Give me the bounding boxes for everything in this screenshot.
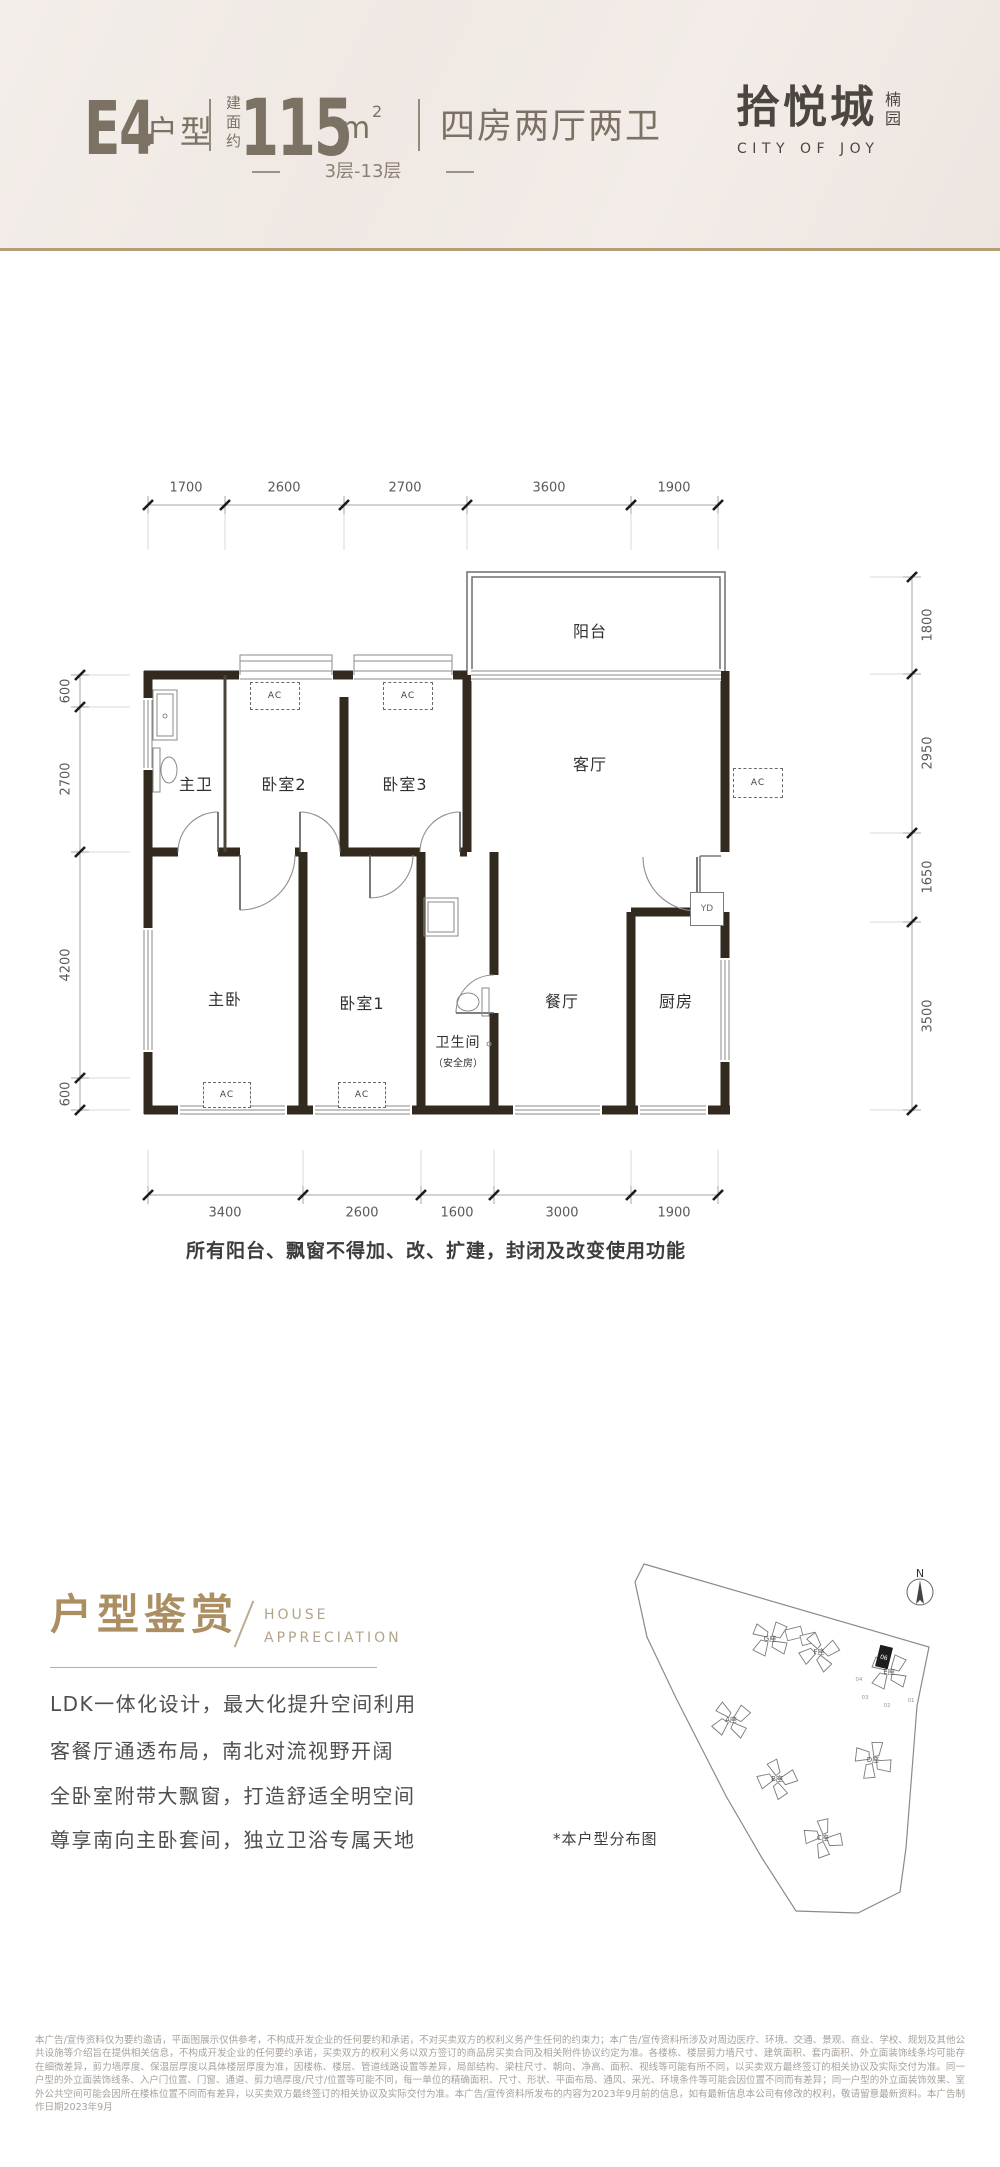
appreciation-subtitle-1: HOUSE	[264, 1608, 329, 1622]
legal-disclaimer: 本广告/宣传资料仅为要约邀请，平面图展示仅供参考，不构成开发企业的任何要约和承诺…	[35, 2034, 965, 2114]
dim-top-4: 3600	[532, 481, 565, 496]
ac-unit-box: AC	[338, 1082, 386, 1108]
appreciation-rule	[50, 1667, 377, 1668]
room-bedroom1: 卧室1	[339, 990, 384, 1014]
highlighted-unit: 06	[875, 1645, 893, 1669]
room-bathroom: 卫生间	[436, 1032, 481, 1052]
unit-label: 04	[856, 1677, 863, 1683]
ac-label: AC	[355, 1090, 369, 1100]
dim-bottom-4: 3000	[545, 1206, 578, 1221]
dim-left-4: 600	[59, 1082, 74, 1107]
yd-label: YD	[701, 904, 713, 914]
unit-suffix: 户型	[146, 116, 214, 148]
appreciation-title: 户型鉴赏	[50, 1594, 238, 1636]
dash-line	[252, 171, 280, 173]
area-value: 115	[240, 90, 351, 168]
room-balcony: 阳台	[573, 618, 607, 642]
dim-left-3: 4200	[59, 948, 74, 981]
area-superscript: 2	[372, 104, 382, 120]
unit-label: 03	[862, 1695, 869, 1701]
site-boundary	[635, 1564, 929, 1913]
logo-sub-char: 园	[884, 111, 902, 127]
ac-label: AC	[220, 1090, 234, 1100]
dim-top-2: 2600	[267, 481, 300, 496]
ac-label: AC	[268, 691, 282, 701]
north-arrow-icon: N	[907, 1567, 933, 1605]
divider	[418, 99, 420, 151]
area-prefix-char: 面	[226, 113, 241, 132]
building-clusters	[710, 1622, 906, 1862]
dim-right-2: 2950	[921, 736, 936, 769]
building-labels: G座 F座 E座 A座 B座 D座 C座	[725, 1634, 895, 1842]
laundry-box: YD	[690, 892, 724, 926]
feature-line-2: 客餐厅通透布局，南北对流视野开阔	[50, 1741, 394, 1761]
room-master-bedroom: 主卧	[208, 986, 242, 1010]
room-master-bath: 主卫	[179, 771, 213, 795]
dim-bottom-3: 1600	[440, 1206, 473, 1221]
bathroom-fixtures	[153, 690, 491, 1046]
room-bathroom-sub: （安全房）	[433, 1055, 483, 1070]
dim-left-1: 600	[59, 679, 74, 704]
dim-top-1: 1700	[169, 481, 202, 496]
building-label-d: D座	[867, 1755, 879, 1764]
unit-code: E4	[84, 92, 155, 166]
ac-label: AC	[751, 778, 765, 788]
door-arcs	[178, 812, 697, 1013]
dim-bottom-1: 3400	[208, 1206, 241, 1221]
logo-english: CITY OF JOY	[737, 142, 879, 156]
floors-range: 3层-13层	[288, 163, 438, 181]
floor-plan	[0, 460, 1000, 1260]
dim-right-4: 3500	[921, 999, 936, 1032]
gold-divider-line	[0, 248, 1000, 251]
north-label: N	[916, 1567, 924, 1580]
site-plan-caption: *本户型分布图	[553, 1828, 658, 1849]
room-kitchen: 厨房	[659, 988, 693, 1012]
area-unit: m	[341, 114, 370, 144]
room-bedroom2: 卧室2	[261, 771, 306, 795]
ac-unit-box: AC	[733, 768, 783, 798]
area-prefix: 建 面 约	[217, 94, 235, 132]
dim-left-2: 2700	[59, 762, 74, 795]
ac-unit-box: AC	[250, 682, 300, 710]
feature-line-4: 尊享南向主卧套间，独立卫浴专属天地	[50, 1830, 416, 1850]
building-label-a: A座	[725, 1715, 737, 1724]
dim-top-3: 2700	[388, 481, 421, 496]
unit-label: 02	[884, 1703, 891, 1709]
plan-restriction-note: 所有阳台、飘窗不得加、改、扩建，封闭及改变使用功能	[136, 1236, 736, 1263]
building-label-c: C座	[817, 1833, 829, 1842]
unit-label: 01	[908, 1698, 915, 1704]
area-prefix-char: 建	[226, 94, 241, 113]
room-dining: 餐厅	[545, 988, 579, 1012]
logo-sub-char: 楠	[884, 92, 902, 108]
building-label-b: B座	[771, 1774, 783, 1783]
room-bedroom3: 卧室3	[382, 771, 427, 795]
logo-name: 拾悦城	[736, 86, 877, 130]
dim-bottom-2: 2600	[345, 1206, 378, 1221]
dash-line	[446, 171, 474, 173]
ac-unit-box: AC	[203, 1082, 251, 1108]
dim-top-5: 1900	[657, 481, 690, 496]
building-label-f: F座	[813, 1647, 824, 1656]
feature-line-1: LDK一体化设计，最大化提升空间利用	[50, 1694, 417, 1714]
divider	[209, 99, 211, 151]
building-label-g: G座	[764, 1634, 776, 1643]
dim-right-3: 1650	[921, 860, 936, 893]
room-living: 客厅	[573, 751, 607, 775]
appreciation-subtitle-2: APPRECIATION	[264, 1631, 402, 1645]
header-section: E4 户型 建 面 约 115 m 2 四房两厅两卫 3层-13层 拾悦城 楠 …	[0, 0, 1000, 248]
dim-right-1: 1800	[921, 608, 936, 641]
ac-unit-box: AC	[383, 682, 433, 710]
ac-label: AC	[401, 691, 415, 701]
site-plan: G座 F座 E座 A座 B座 D座 C座 04 03 02 01 06 N	[605, 1540, 975, 1930]
poster-page: E4 户型 建 面 约 115 m 2 四房两厅两卫 3层-13层 拾悦城 楠 …	[0, 0, 1000, 2167]
dim-bottom-5: 1900	[657, 1206, 690, 1221]
rooms-description: 四房两厅两卫	[440, 110, 662, 145]
area-prefix-char: 约	[226, 132, 241, 151]
feature-line-3: 全卧室附带大飘窗，打造舒适全明空间	[50, 1786, 416, 1806]
